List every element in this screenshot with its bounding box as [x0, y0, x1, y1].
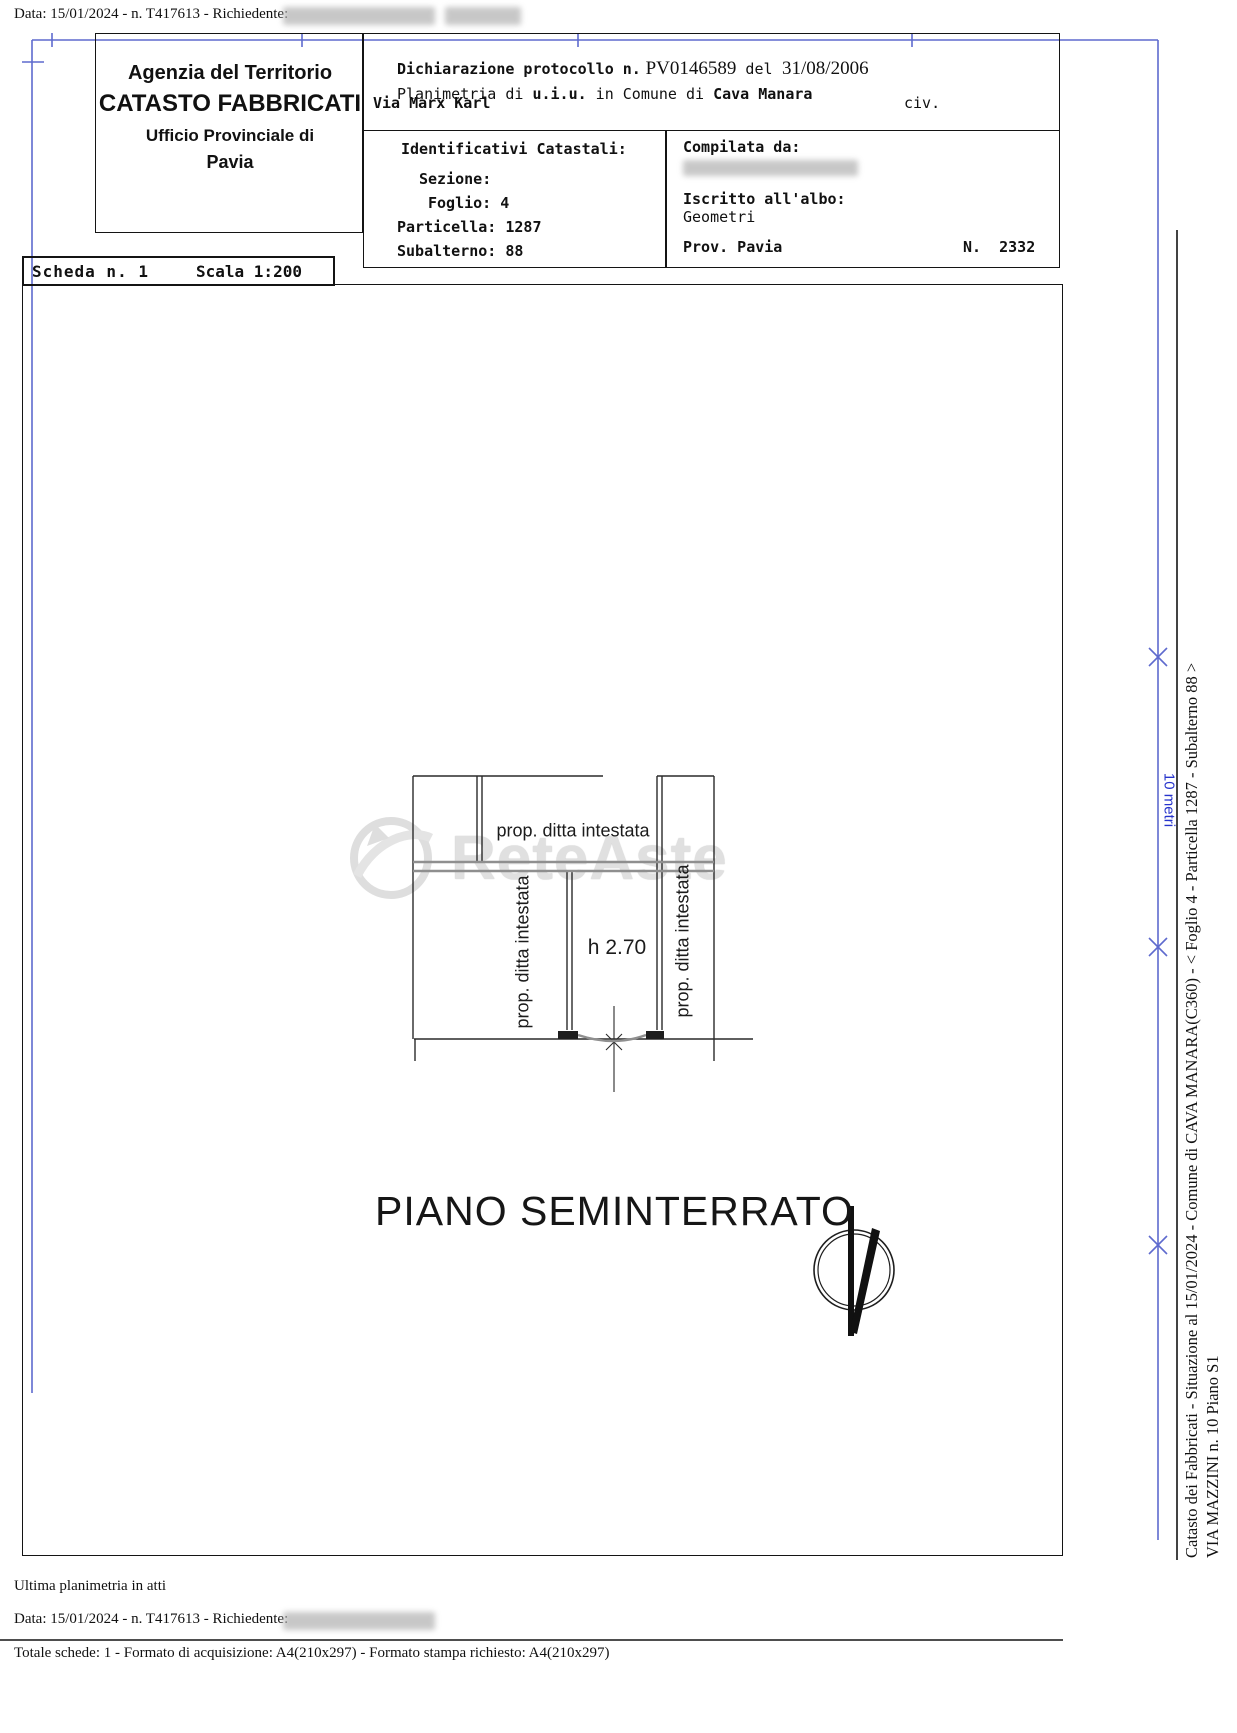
compiled-by-box: Compilata da: Iscritto all'albo: Geometr…	[666, 131, 1060, 268]
particella-field: Particella: 1287	[397, 218, 542, 236]
room-label-top: prop. ditta intestata	[496, 821, 649, 842]
scale-value: Scala 1:200	[196, 262, 302, 281]
sheet-scale-box: Scheda n. 1 Scala 1:200	[22, 256, 335, 286]
street-line: Via Marx Karl	[373, 94, 490, 112]
sezione-field: Sezione:	[419, 170, 491, 188]
side-caption-main: Catasto dei Fabbricati - Situazione al 1…	[1182, 663, 1202, 1558]
footer-data-line: Data: 15/01/2024 - n. T417613 - Richiede…	[14, 1611, 288, 1628]
side-caption-address: VIA MAZZINI n. 10 Piano S1	[1203, 1355, 1223, 1558]
register-number: N. 2332	[963, 238, 1035, 256]
redacted-requester-name-footer	[283, 1612, 435, 1630]
office-line: Ufficio Provinciale di	[96, 126, 364, 146]
footer-totale-line: Totale schede: 1 - Formato di acquisizio…	[14, 1645, 610, 1662]
declaration-box: Dichiarazione protocollo n. PV0146589 de…	[363, 33, 1060, 131]
province-name: Pavia	[96, 152, 364, 173]
scale-bar-label: 10 metri	[1161, 773, 1178, 827]
redacted-surveyor-name	[683, 160, 858, 176]
catasto-title: CATASTO FABBRICATI	[96, 90, 364, 118]
cadastral-document-page: Data: 15/01/2024 - n. T417613 - Richiede…	[0, 0, 1237, 1733]
floor-title: PIANO SEMINTERRATO	[375, 1188, 854, 1235]
register-value: Geometri	[683, 208, 755, 226]
compiled-by-label: Compilata da:	[683, 138, 800, 156]
province-field: Prov. Pavia	[683, 238, 782, 256]
civic-label: civ.	[904, 94, 940, 112]
register-label: Iscritto all'albo:	[683, 190, 846, 208]
sheet-number: Scheda n. 1	[32, 262, 149, 281]
subalterno-field: Subalterno: 88	[397, 242, 523, 260]
cadastral-identifiers-box: Identificativi Catastali: Sezione: Fogli…	[363, 131, 666, 268]
footer-ultima-line: Ultima planimetria in atti	[14, 1578, 166, 1595]
agency-header-box: Agenzia del Territorio CATASTO FABBRICAT…	[95, 33, 363, 233]
agency-name: Agenzia del Territorio	[96, 62, 364, 85]
identifiers-title: Identificativi Catastali:	[401, 140, 627, 158]
room-label-right: prop. ditta intestata	[673, 864, 694, 1017]
room-label-left: prop. ditta intestata	[513, 875, 534, 1028]
foglio-field: Foglio: 4	[428, 194, 509, 212]
ceiling-height-label: h 2.70	[588, 936, 646, 960]
floor-plan-drawing	[370, 680, 1070, 1380]
